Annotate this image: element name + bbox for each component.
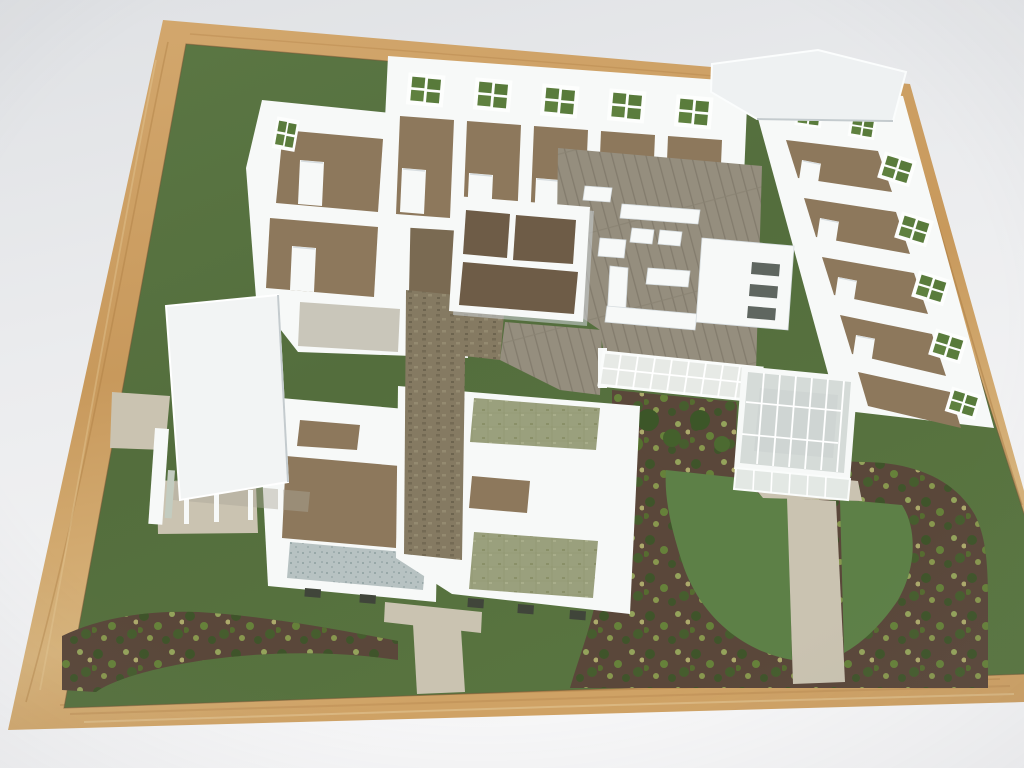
photo-of-architectural-model — [0, 0, 1024, 768]
photo-vignette — [0, 0, 1024, 768]
model-photo-canvas — [0, 0, 1024, 768]
